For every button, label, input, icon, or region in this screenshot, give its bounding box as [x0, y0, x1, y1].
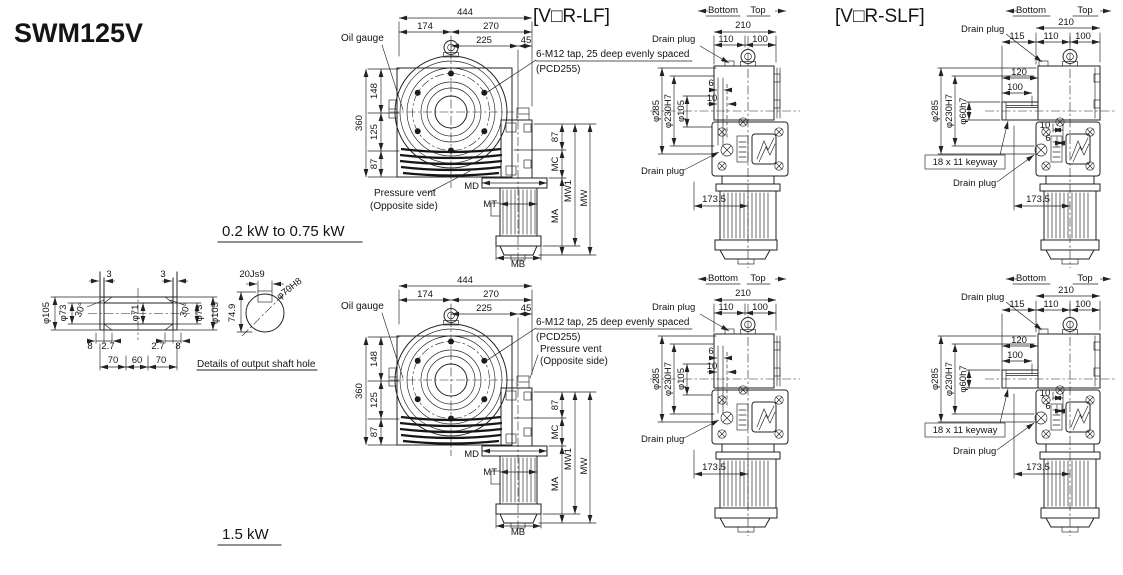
dim-87-right-2: 87 [550, 400, 561, 411]
dim-270-2: 270 [483, 289, 499, 300]
dim-360-2: 360 [354, 383, 365, 399]
dim-225-2: 225 [476, 303, 492, 314]
output-shaft-detail: 3 3 φ105 φ73 30° φ71 30° φ73 φ105 8 2.7 … [41, 269, 317, 370]
dim-MT: MT [483, 199, 497, 210]
dim-27-right: 2.7 [151, 341, 164, 352]
dim-270: 270 [483, 21, 499, 32]
dim-20js9: 20Js9 [239, 269, 264, 280]
dim-phi71: φ71 [130, 305, 141, 322]
dim-8-left: 8 [87, 341, 92, 352]
engineering-drawing: Bottom Top 210 110 100 6 10 φ285 φ230H7 … [0, 0, 1123, 575]
dim-45-2: 45 [521, 303, 532, 314]
dim-749: 74.9 [227, 304, 238, 323]
dim-27-left: 2.7 [101, 341, 114, 352]
dim-MW1-2: MW1 [563, 448, 574, 470]
dim-174: 174 [417, 21, 433, 32]
pressure-vent-label-2: (Opposite side) [370, 201, 438, 212]
oil-gauge-label: Oil gauge [341, 33, 384, 44]
dim-30deg-left: 30° [73, 301, 88, 318]
dim-MT-2: MT [483, 467, 497, 478]
dim-3-left: 3 [106, 269, 111, 280]
dim-MD-2: MD [464, 449, 479, 460]
dim-phi105-left: φ105 [41, 302, 52, 324]
dim-87: 87 [369, 159, 380, 170]
dim-phi105-right: φ105 [210, 302, 221, 324]
power-rating-small: 0.2 kW to 0.75 kW [222, 223, 345, 240]
dim-444-2: 444 [457, 275, 473, 286]
front-view-small-kw: 444 174 270 225 45 360 148 125 87 87 MC … [341, 7, 692, 270]
dim-MW-2: MW [579, 458, 590, 475]
tap-note-2: 6-M12 tap, 25 deep evenly spaced [536, 317, 689, 328]
dim-MC-2: MC [550, 424, 561, 439]
slf-view-header: [V□R-SLF] [835, 6, 925, 27]
dim-MA: MA [550, 208, 561, 223]
dim-87-2: 87 [369, 427, 380, 438]
dim-8-right: 8 [175, 341, 180, 352]
pressure-vent-label-2-2: (Opposite side) [540, 356, 608, 367]
dim-444: 444 [457, 7, 473, 18]
dim-phi73-left: φ73 [58, 305, 69, 322]
dim-MB-2: MB [511, 527, 525, 538]
shaft-detail-caption: Details of output shaft hole [197, 359, 316, 370]
keyway-slot [258, 291, 272, 302]
dim-70-left: 70 [108, 355, 119, 366]
pressure-vent-leader-2 [530, 355, 538, 378]
slf-view-small-kw [925, 5, 1115, 268]
dim-3-right: 3 [160, 269, 165, 280]
dim-phi73-right: φ73 [194, 305, 205, 322]
dim-45: 45 [521, 35, 532, 46]
page-title: SWM125V [14, 18, 143, 48]
dim-148: 148 [369, 83, 380, 99]
dim-360: 360 [354, 115, 365, 131]
dim-60: 60 [132, 355, 143, 366]
lf-view-large-kw [641, 273, 800, 536]
oil-gauge-label-2: Oil gauge [341, 301, 384, 312]
front-view-large-kw: 444 174 270 225 45 360 148 125 87 87 MC … [341, 275, 692, 538]
pressure-vent-label-1: Pressure vent [374, 188, 436, 199]
lf-view-small-kw [641, 5, 800, 268]
dim-70-right: 70 [156, 355, 167, 366]
dim-MW1: MW1 [563, 180, 574, 202]
dim-MC: MC [550, 156, 561, 171]
catalog-drawing-page: Bottom Top 210 110 100 6 10 φ285 φ230H7 … [0, 0, 1123, 575]
dim-87-right: 87 [550, 132, 561, 143]
slf-view-large-kw [925, 273, 1115, 536]
dim-MW: MW [579, 190, 590, 207]
dim-MD: MD [464, 181, 479, 192]
pcd-note: (PCD255) [536, 64, 580, 75]
pressure-vent-label-1-2: Pressure vent [540, 344, 602, 355]
lf-view-header: [V□R-LF] [533, 6, 610, 27]
power-rating-large: 1.5 kW [222, 526, 270, 543]
dim-phi70h8: φ70H8 [275, 276, 305, 302]
dim-225: 225 [476, 35, 492, 46]
tap-note: 6-M12 tap, 25 deep evenly spaced [536, 49, 689, 60]
dim-125: 125 [369, 124, 380, 140]
dim-174-2: 174 [417, 289, 433, 300]
dim-148-2: 148 [369, 351, 380, 367]
dim-125-2: 125 [369, 392, 380, 408]
dim-MB: MB [511, 259, 525, 270]
pcd-note-2: (PCD255) [536, 332, 580, 343]
dim-MA-2: MA [550, 476, 561, 491]
